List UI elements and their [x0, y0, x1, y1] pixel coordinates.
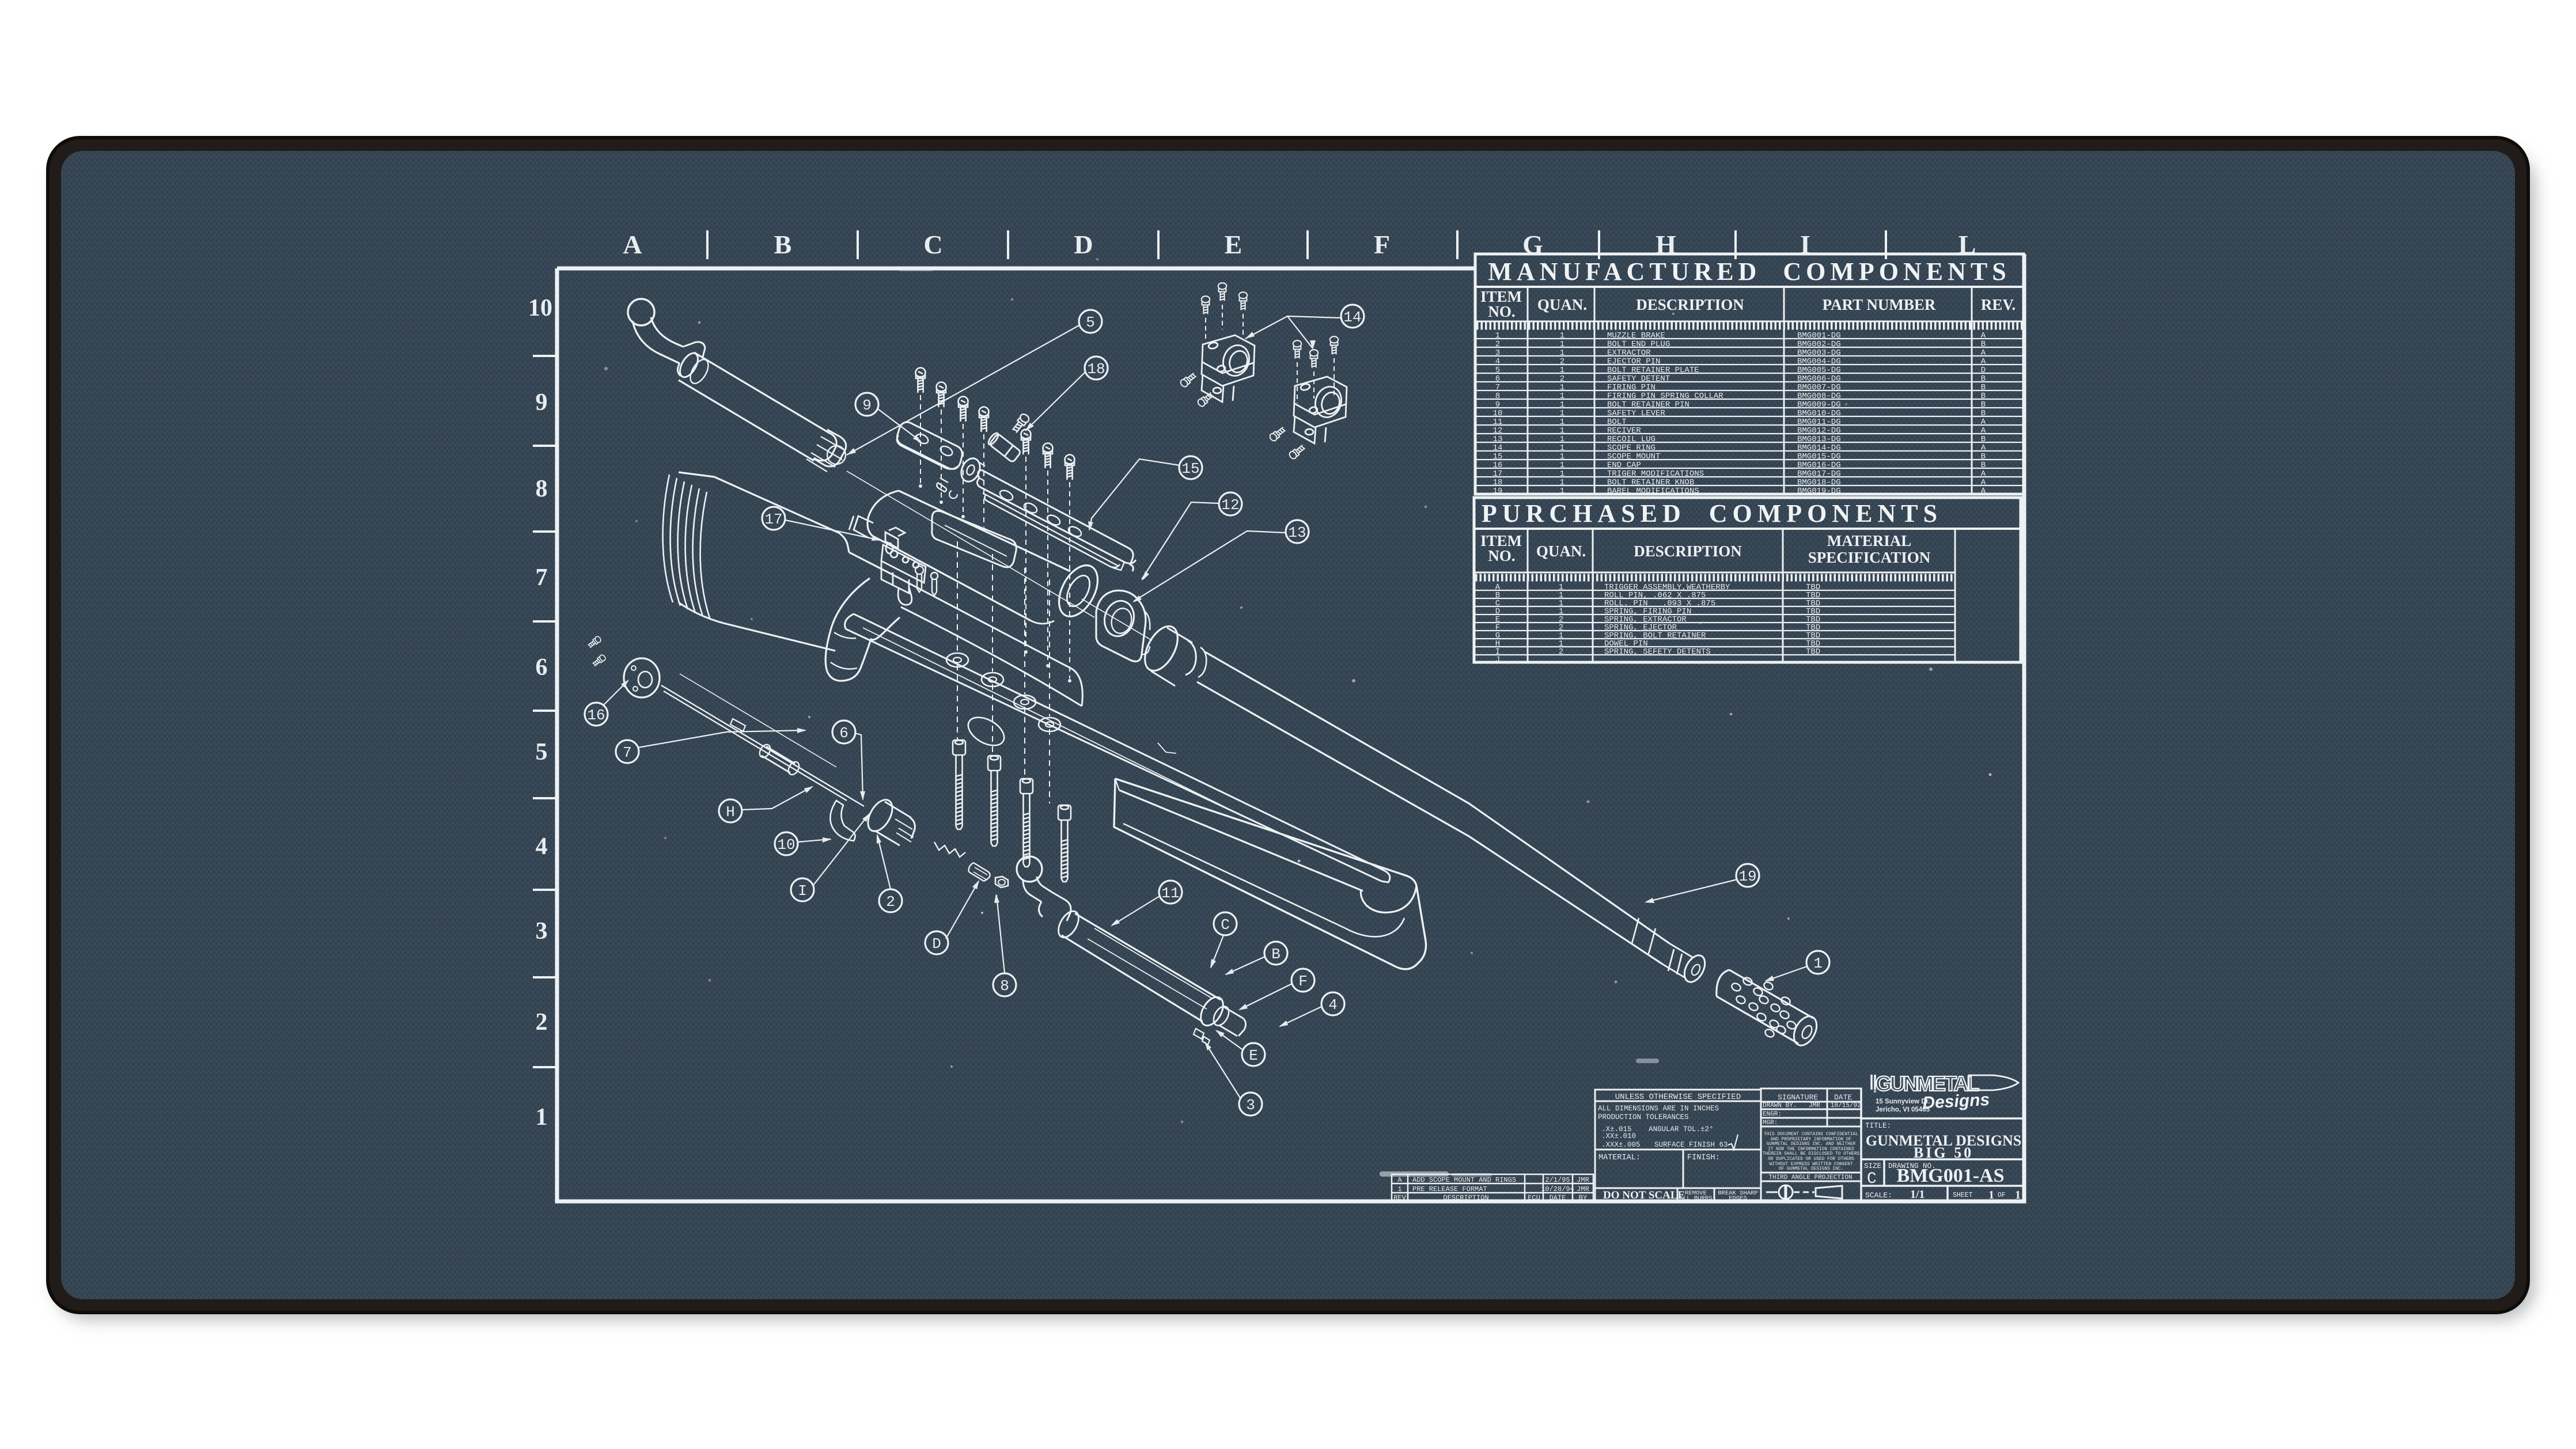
svg-text:ALL DIMENSIONS ARE IN INCHES: ALL DIMENSIONS ARE IN INCHES [1598, 1105, 1719, 1113]
svg-text:BIG 50: BIG 50 [1914, 1144, 1973, 1161]
svg-text:DO NOT SCALE: DO NOT SCALE [1603, 1189, 1685, 1201]
svg-text:FINISH:: FINISH: [1687, 1154, 1720, 1162]
svg-text:10: 10 [777, 836, 795, 854]
svg-text:6: 6 [536, 654, 548, 681]
svg-text:ENGR:: ENGR: [1763, 1111, 1782, 1118]
svg-text:DESCRIPTION: DESCRIPTION [1443, 1194, 1488, 1202]
svg-text:Designs: Designs [1922, 1090, 1990, 1113]
svg-text:QUAN.: QUAN. [1536, 543, 1586, 560]
svg-text:THIS DOCUMENT CONTAINS CONFIDE: THIS DOCUMENT CONTAINS CONFIDENTIAL [1764, 1132, 1858, 1137]
svg-text:2/1/95: 2/1/95 [1545, 1176, 1570, 1184]
svg-text:4: 4 [536, 833, 548, 860]
svg-text:I: I [798, 882, 807, 900]
svg-text:DESCRIPTION: DESCRIPTION [1634, 543, 1742, 560]
svg-text:REV: REV [1393, 1194, 1406, 1202]
svg-text:9: 9 [536, 389, 548, 416]
svg-text:ECU: ECU [1528, 1194, 1540, 1202]
svg-text:AND PROPRIETARY INFORMATION OF: AND PROPRIETARY INFORMATION OF [1771, 1137, 1852, 1142]
svg-text:PRE RELEASE FORMAT: PRE RELEASE FORMAT [1412, 1185, 1487, 1193]
svg-text:E: E [1225, 230, 1242, 259]
svg-text:SHEET: SHEET [1953, 1192, 1973, 1199]
svg-text:3: 3 [1246, 1097, 1255, 1114]
svg-text:THEREIN SHALL BE DISCLOSED TO: THEREIN SHALL BE DISCLOSED TO OTHERS [1763, 1152, 1860, 1156]
svg-text:B: B [774, 230, 792, 259]
svg-text:BY: BY [1579, 1194, 1587, 1202]
svg-text:11: 11 [1161, 885, 1179, 902]
svg-text:8: 8 [1000, 977, 1009, 995]
svg-text:JMR: JMR [1809, 1102, 1820, 1109]
svg-text:SIZE: SIZE [1864, 1162, 1881, 1170]
svg-text:ANGULAR TOL.±2°: ANGULAR TOL.±2° [1649, 1125, 1714, 1133]
svg-text:DESCRIPTION: DESCRIPTION [1636, 296, 1744, 313]
svg-text:D: D [932, 935, 941, 953]
svg-text:MATERIAL:: MATERIAL: [1598, 1154, 1641, 1162]
svg-text:6: 6 [839, 724, 848, 742]
svg-text:MGR:: MGR: [1763, 1120, 1778, 1126]
svg-text:DRAWN BY.: DRAWN BY. [1763, 1102, 1797, 1109]
svg-text:10/28/94: 10/28/94 [1541, 1185, 1574, 1193]
svg-text:JMR: JMR [1577, 1185, 1589, 1193]
svg-text:UNLESS OTHERWISE SPECIFIED: UNLESS OTHERWISE SPECIFIED [1615, 1093, 1741, 1102]
svg-text:SPECIFICATION: SPECIFICATION [1808, 549, 1931, 566]
svg-text:A: A [1397, 1176, 1402, 1184]
svg-text:DATE: DATE [1834, 1093, 1852, 1102]
svg-text:A: A [623, 230, 642, 259]
svg-text:10/15/92: 10/15/92 [1831, 1102, 1861, 1109]
svg-text:ADD SCOPE MOUNT AND RINGS: ADD SCOPE MOUNT AND RINGS [1412, 1176, 1516, 1184]
svg-text:19: 19 [1738, 868, 1756, 885]
svg-text:17: 17 [764, 511, 782, 528]
svg-text:15: 15 [1181, 460, 1199, 477]
svg-text:E: E [1249, 1047, 1258, 1064]
svg-text:5: 5 [1086, 314, 1095, 331]
svg-text:REV.: REV. [1981, 296, 2016, 313]
svg-text:NO.: NO. [1488, 303, 1515, 320]
svg-text:.XXX±.005: .XXX±.005 [1601, 1141, 1641, 1149]
svg-text:7: 7 [536, 564, 548, 591]
svg-text:GUNMETAL DESIGNS INC. AND NEIT: GUNMETAL DESIGNS INC. AND NEITHER [1767, 1142, 1856, 1147]
svg-text:1: 1 [1397, 1185, 1401, 1193]
svg-text:PRODUCTION TOLERANCES: PRODUCTION TOLERANCES [1598, 1113, 1689, 1121]
svg-text:10: 10 [528, 295, 552, 321]
svg-text:C: C [923, 230, 942, 259]
svg-text:BMG001-AS: BMG001-AS [1897, 1165, 2005, 1186]
svg-text:14: 14 [1343, 309, 1361, 326]
svg-text:SIGNATURE: SIGNATURE [1778, 1093, 1818, 1102]
svg-text:THIRD ANGLE PROJECTION: THIRD ANGLE PROJECTION [1768, 1174, 1852, 1181]
svg-text:F: F [1374, 230, 1390, 259]
svg-text:F: F [1298, 973, 1308, 990]
svg-text:1: 1 [2015, 1189, 2021, 1201]
svg-text:12: 12 [1221, 496, 1239, 514]
svg-text:18: 18 [1087, 361, 1105, 378]
svg-text:5: 5 [536, 739, 548, 765]
svg-text:2: 2 [886, 893, 895, 911]
svg-text:1/1: 1/1 [1910, 1188, 1925, 1201]
svg-text:H: H [726, 803, 735, 821]
svg-text:JMR: JMR [1577, 1176, 1589, 1184]
svg-text:MATERIAL: MATERIAL [1827, 532, 1912, 549]
svg-text:7: 7 [623, 744, 632, 761]
svg-text:WITHOUT EXPRESS WRITTEN CONSEN: WITHOUT EXPRESS WRITTEN CONSENT [1769, 1162, 1853, 1167]
svg-text:DATE: DATE [1550, 1194, 1566, 1202]
svg-text:EDGES: EDGES [1729, 1195, 1747, 1202]
svg-text:1: 1 [1813, 955, 1823, 972]
svg-text:Jericho, Vt 05465: Jericho, Vt 05465 [1876, 1106, 1930, 1113]
svg-text:3: 3 [536, 918, 548, 944]
svg-text:PART NUMBER: PART NUMBER [1823, 296, 1936, 313]
svg-text:OF: OF [1998, 1192, 2006, 1199]
svg-text:4: 4 [1328, 996, 1338, 1014]
svg-text:2: 2 [536, 1009, 548, 1035]
svg-text:SURFACE FINISH 63: SURFACE FINISH 63 [1654, 1141, 1728, 1149]
svg-text:C: C [1867, 1170, 1877, 1188]
svg-text:TITLE:: TITLE: [1865, 1122, 1891, 1130]
svg-text:SCALE:: SCALE: [1865, 1191, 1892, 1200]
svg-text:13: 13 [1288, 524, 1306, 541]
svg-text:J: J [1495, 655, 1500, 665]
svg-text:B: B [1271, 946, 1281, 963]
svg-text:9: 9 [862, 397, 872, 414]
svg-text:PURCHASED COMPONENTS: PURCHASED COMPONENTS [1482, 499, 1942, 528]
svg-text:MANUFACTURED COMPONENTS: MANUFACTURED COMPONENTS [1488, 257, 2010, 286]
svg-text:8: 8 [536, 476, 548, 502]
svg-text:1: 1 [1988, 1189, 1994, 1201]
svg-text:OR DUPLICATED OR USED FOR OTHE: OR DUPLICATED OR USED FOR OTHERS [1768, 1157, 1854, 1162]
svg-text:C: C [1221, 916, 1230, 934]
svg-text:16: 16 [587, 707, 605, 724]
svg-text:.XX±.010: .XX±.010 [1601, 1132, 1636, 1140]
svg-text:OF GUNMETAL DESIGNS INC.: OF GUNMETAL DESIGNS INC. [1779, 1167, 1843, 1171]
svg-text:D: D [1074, 230, 1093, 259]
svg-text:1: 1 [536, 1104, 548, 1131]
svg-text:15 Sunnyview Dr.: 15 Sunnyview Dr. [1876, 1098, 1930, 1105]
svg-text:NO.: NO. [1488, 547, 1515, 564]
svg-text:QUAN.: QUAN. [1537, 296, 1587, 313]
svg-text:IT NOR THE INFORMATION CONTAIN: IT NOR THE INFORMATION CONTAINED [1768, 1147, 1854, 1152]
